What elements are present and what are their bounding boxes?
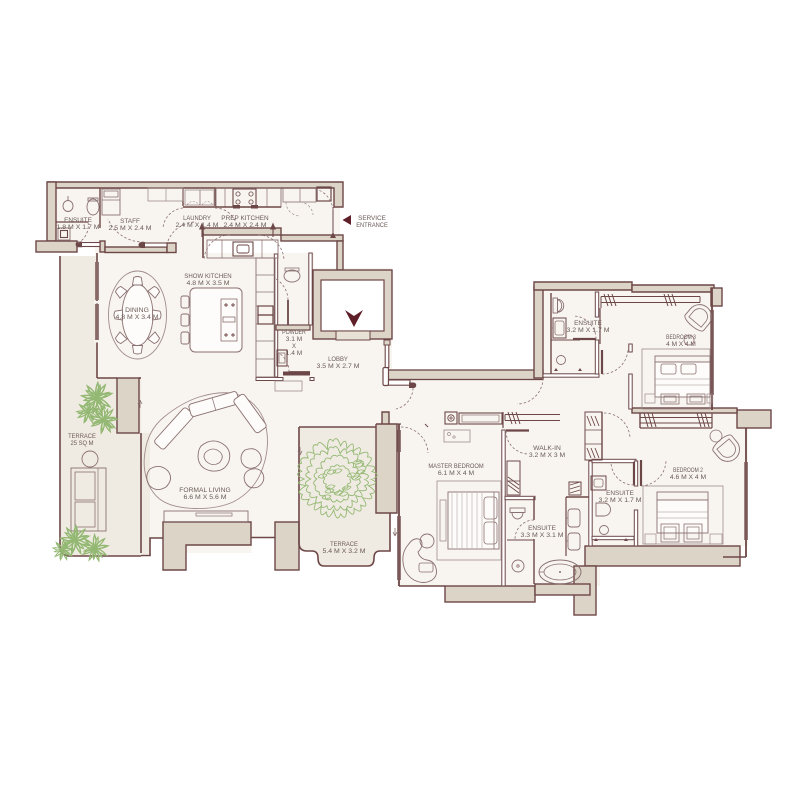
svg-text:ENSUITE: ENSUITE (528, 525, 556, 532)
svg-text:MASTER BEDROOM: MASTER BEDROOM (428, 463, 483, 470)
svg-text:3.3 M X 3.1 M: 3.3 M X 3.1 M (521, 532, 564, 539)
svg-text:6.6 M X 5.6 M: 6.6 M X 5.6 M (184, 494, 227, 501)
svg-text:PREP KITCHEN: PREP KITCHEN (221, 215, 268, 222)
svg-text:LAUNDRY: LAUNDRY (183, 215, 211, 222)
svg-text:ENTRANCE: ENTRANCE (356, 222, 388, 229)
svg-text:SHOW KITCHEN: SHOW KITCHEN (184, 273, 231, 280)
svg-text:5.4 M X 3.2 M: 5.4 M X 3.2 M (323, 548, 366, 555)
svg-text:2.4 M X 2.4 M: 2.4 M X 2.4 M (224, 222, 267, 229)
svg-text:TERRACE: TERRACE (68, 433, 96, 440)
svg-text:4.8 M X 3.4 M: 4.8 M X 3.4 M (116, 315, 159, 321)
svg-text:4.8 M X 3.5 M: 4.8 M X 3.5 M (187, 280, 230, 287)
svg-text:DINING: DINING (125, 308, 149, 314)
svg-text:3.1 M: 3.1 M (286, 337, 303, 343)
svg-text:LOBBY: LOBBY (328, 356, 348, 363)
svg-text:3.2 M X 1.7 M: 3.2 M X 1.7 M (567, 327, 610, 334)
svg-text:BEDROOM 3: BEDROOM 3 (666, 334, 696, 341)
svg-text:25 SQ M: 25 SQ M (70, 440, 93, 447)
svg-text:POWDER: POWDER (282, 330, 306, 336)
svg-text:3.2 M X 3 M: 3.2 M X 3 M (529, 452, 565, 459)
svg-text:TERRACE: TERRACE (330, 541, 358, 548)
svg-text:BEDROOM 2: BEDROOM 2 (673, 467, 703, 474)
svg-text:WALK-IN: WALK-IN (533, 445, 561, 452)
svg-text:3.2 M X 1.7 M: 3.2 M X 1.7 M (599, 497, 642, 504)
svg-text:2.4 M X 1.4 M: 2.4 M X 1.4 M (176, 222, 219, 229)
svg-text:ENSUITE: ENSUITE (606, 490, 634, 497)
svg-text:3.5 M X 2.7 M: 3.5 M X 2.7 M (317, 363, 360, 370)
svg-text:X: X (292, 344, 296, 350)
svg-text:SERVICE: SERVICE (358, 215, 386, 222)
svg-text:1.4 M: 1.4 M (286, 351, 303, 357)
svg-text:ENSUITE: ENSUITE (64, 218, 92, 224)
svg-text:FORMAL LIVING: FORMAL LIVING (179, 487, 231, 494)
svg-text:1.8 M X 1.7 M: 1.8 M X 1.7 M (57, 225, 100, 231)
svg-text:STAFF: STAFF (120, 218, 140, 225)
svg-text:4.6 M X 4 M: 4.6 M X 4 M (670, 474, 706, 481)
svg-text:2.5 M X 2.4 M: 2.5 M X 2.4 M (109, 225, 152, 232)
svg-text:6.1 M X 4 M: 6.1 M X 4 M (438, 470, 474, 477)
svg-text:ENSUITE: ENSUITE (574, 320, 602, 327)
